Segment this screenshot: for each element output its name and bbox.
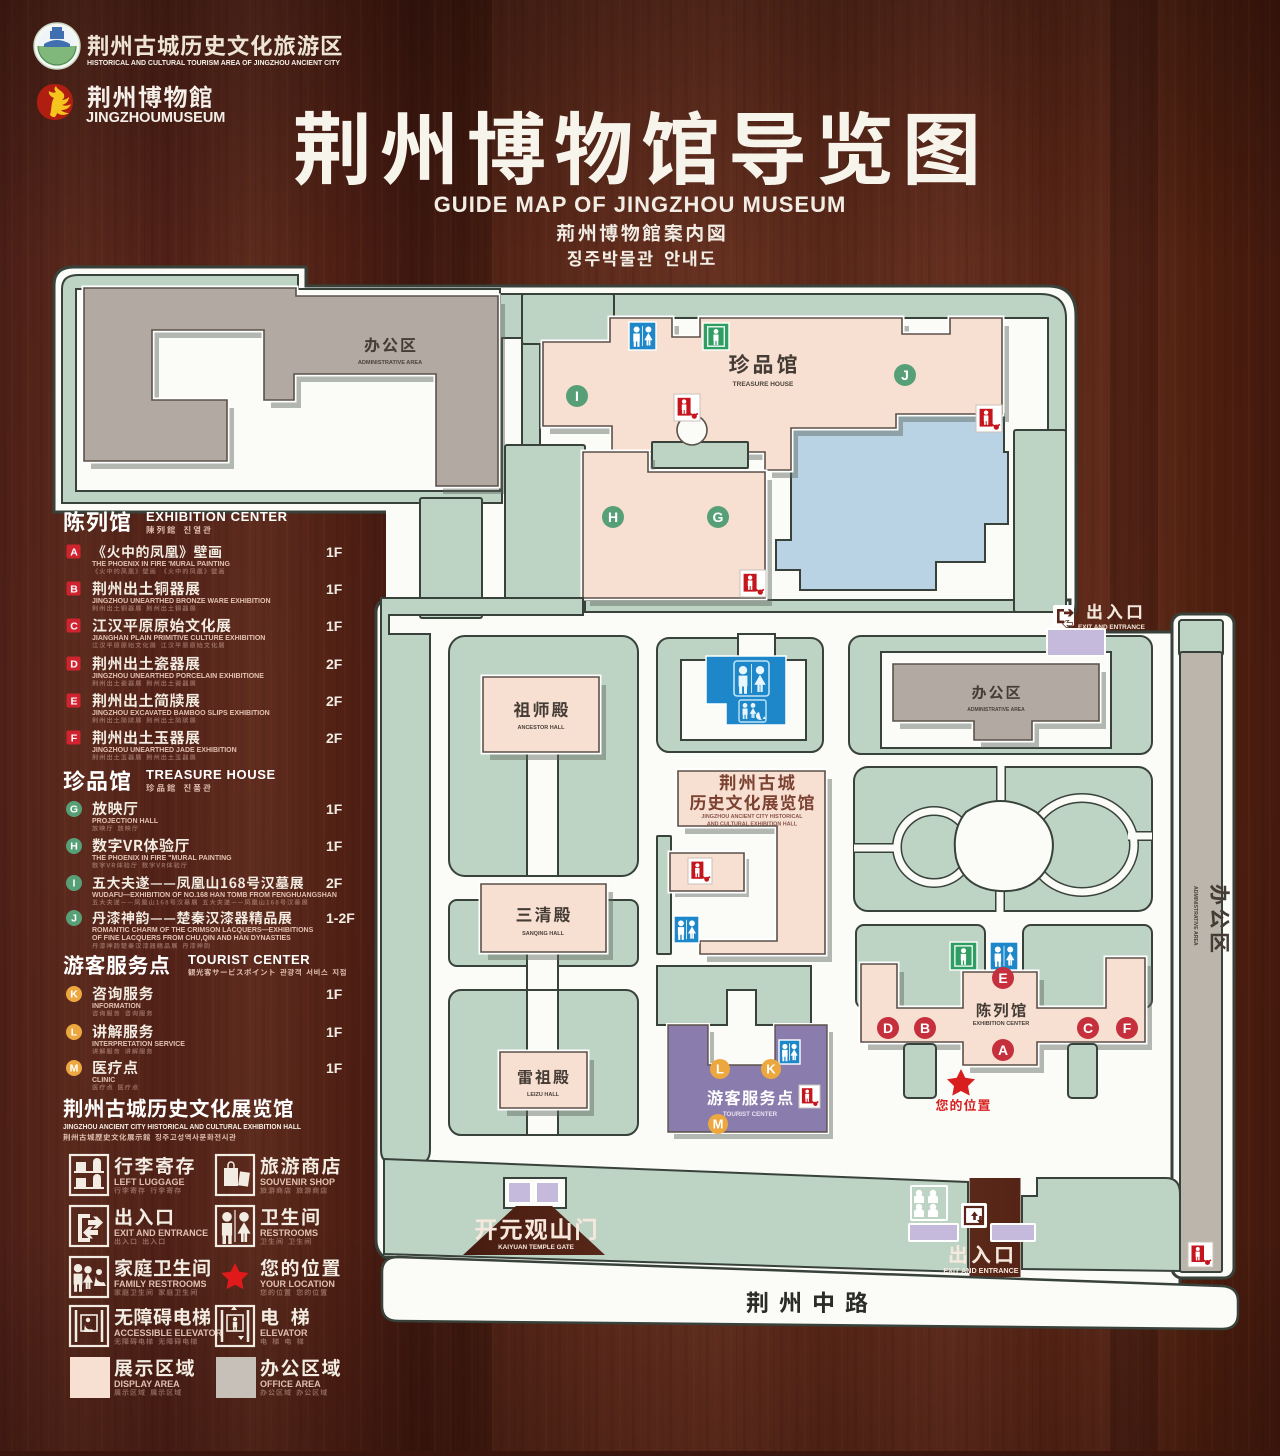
svg-text:SANQING HALL: SANQING HALL <box>522 931 565 937</box>
svg-text:TOURIST CENTER: TOURIST CENTER <box>188 952 310 967</box>
svg-text:FAMILY RESTROOMS: FAMILY RESTROOMS <box>114 1279 207 1289</box>
svg-text:2F: 2F <box>326 693 343 709</box>
svg-text:INTERPRETATION SERVICE: INTERPRETATION SERVICE <box>92 1041 185 1048</box>
svg-text:B: B <box>70 584 78 596</box>
svg-text:INFORMATION: INFORMATION <box>92 1003 141 1010</box>
svg-text:1F: 1F <box>326 986 343 1002</box>
svg-text:EXIT AND ENTRANCE: EXIT AND ENTRANCE <box>943 1266 1018 1275</box>
svg-text:E: E <box>998 970 1007 986</box>
svg-text:2F: 2F <box>326 656 343 672</box>
svg-text:EXHIBITION CENTER: EXHIBITION CENTER <box>973 1021 1030 1027</box>
svg-text:JINGZHOU ANCIENT CITY HISTORIC: JINGZHOU ANCIENT CITY HISTORICAL AND CUL… <box>63 1122 301 1131</box>
svg-text:B: B <box>920 1020 930 1036</box>
svg-text:G: G <box>70 804 78 816</box>
svg-text:F: F <box>1123 1020 1132 1036</box>
svg-text:1F: 1F <box>326 618 343 634</box>
svg-text:G: G <box>713 509 724 525</box>
svg-text:RESTROOMS: RESTROOMS <box>260 1228 318 1238</box>
svg-text:F: F <box>71 733 78 745</box>
svg-text:JINGZHOU UNEARTHED JADE EXHIBI: JINGZHOU UNEARTHED JADE EXHIBITION <box>92 747 237 754</box>
svg-text:YOUR LOCATION: YOUR LOCATION <box>260 1279 335 1289</box>
svg-text:JINGZHOU ANCIENT CITY HISTORIC: JINGZHOU ANCIENT CITY HISTORICAL <box>701 814 803 820</box>
svg-text:D: D <box>883 1020 893 1036</box>
svg-text:SOUVENIR SHOP: SOUVENIR SHOP <box>260 1177 335 1187</box>
svg-text:E: E <box>70 696 77 708</box>
svg-text:I: I <box>73 878 76 890</box>
svg-text:M: M <box>70 1063 79 1075</box>
svg-text:ROMANTIC CHARM OF THE CRIMSON: ROMANTIC CHARM OF THE CRIMSON LACQUERS—E… <box>92 927 314 934</box>
svg-text:LEIZU HALL: LEIZU HALL <box>527 1092 560 1098</box>
svg-text:L: L <box>716 1062 724 1077</box>
svg-text:K: K <box>70 989 78 1001</box>
svg-text:D: D <box>70 659 78 671</box>
svg-text:1-2F: 1-2F <box>326 910 355 926</box>
svg-text:ELEVATOR: ELEVATOR <box>260 1328 308 1338</box>
svg-text:TOURIST CENTER: TOURIST CENTER <box>723 1111 778 1118</box>
svg-text:ACCESSIBLE ELEVATOR: ACCESSIBLE ELEVATOR <box>114 1328 223 1338</box>
svg-text:1F: 1F <box>326 801 343 817</box>
svg-text:1F: 1F <box>326 1060 343 1076</box>
svg-text:JINGZHOU EXCAVATED BAMBOO SLIP: JINGZHOU EXCAVATED BAMBOO SLIPS EXHIBITI… <box>92 710 270 717</box>
svg-text:WUDAFU—EXHIBITION OF NO.168 HA: WUDAFU—EXHIBITION OF NO.168 HAN TOMB FRO… <box>92 892 337 899</box>
svg-text:ADMINISTRATIVE AREA: ADMINISTRATIVE AREA <box>358 360 422 366</box>
svg-text:THE PHOENIX IN FIRE "MURAL PAI: THE PHOENIX IN FIRE "MURAL PAINTING <box>92 855 232 862</box>
svg-text:OFFICE AREA: OFFICE AREA <box>260 1379 321 1389</box>
svg-text:ADMINISTRATIVE AREA: ADMINISTRATIVE AREA <box>1192 886 1198 946</box>
svg-text:JINGZHOU UNEARTHED PORCELAIN E: JINGZHOU UNEARTHED PORCELAIN EXHIBITIONE <box>92 673 264 680</box>
svg-text:2F: 2F <box>326 730 343 746</box>
svg-text:H: H <box>70 841 78 853</box>
svg-text:JIANGHAN PLAIN PRIMITIVE CULTU: JIANGHAN PLAIN PRIMITIVE CULTURE EXHIBIT… <box>92 635 265 642</box>
svg-text:H: H <box>608 509 618 525</box>
svg-text:ANCESTOR HALL: ANCESTOR HALL <box>518 725 566 731</box>
svg-text:C: C <box>70 621 78 633</box>
svg-text:A: A <box>70 547 78 559</box>
svg-text:A: A <box>998 1042 1008 1058</box>
svg-text:L: L <box>71 1027 78 1039</box>
svg-text:EXIT AND ENTRANCE: EXIT AND ENTRANCE <box>114 1228 208 1238</box>
svg-text:M: M <box>713 1117 724 1132</box>
svg-text:JINGZHOUMUSEUM: JINGZHOUMUSEUM <box>86 110 225 126</box>
svg-text:I: I <box>575 388 579 404</box>
svg-text:CLINIC: CLINIC <box>92 1077 115 1084</box>
svg-text:J: J <box>901 367 909 383</box>
svg-text:1F: 1F <box>326 581 343 597</box>
svg-text:1F: 1F <box>326 1024 343 1040</box>
svg-text:DISPLAY AREA: DISPLAY AREA <box>114 1379 180 1389</box>
svg-text:C: C <box>1083 1020 1093 1036</box>
svg-text:EXIT AND ENTRANCE: EXIT AND ENTRANCE <box>1078 624 1146 631</box>
svg-text:JINGZHOU UNEARTHED BRONZE WARE: JINGZHOU UNEARTHED BRONZE WARE EXHIBITIO… <box>92 598 271 605</box>
svg-text:AND CULTURAL EXHIBITION HALL: AND CULTURAL EXHIBITION HALL <box>707 822 798 828</box>
svg-text:1F: 1F <box>326 838 343 854</box>
svg-text:2F: 2F <box>326 875 343 891</box>
svg-text:TREASURE HOUSE: TREASURE HOUSE <box>146 767 276 782</box>
svg-text:LEFT LUGGAGE: LEFT LUGGAGE <box>114 1177 185 1187</box>
svg-text:K: K <box>766 1062 776 1077</box>
svg-text:EXHIBITION CENTER: EXHIBITION CENTER <box>146 509 288 524</box>
svg-text:GUIDE MAP OF JINGZHOU MUSEUM: GUIDE MAP OF JINGZHOU MUSEUM <box>434 192 847 217</box>
svg-text:TREASURE HOUSE: TREASURE HOUSE <box>733 381 794 388</box>
svg-text:THE PHOENIX IN FIRE 'MURAL PAI: THE PHOENIX IN FIRE 'MURAL PAINTING <box>92 561 230 568</box>
svg-text:PROJECTION HALL: PROJECTION HALL <box>92 818 159 825</box>
svg-text:ADMINISTRATIVE AREA: ADMINISTRATIVE AREA <box>967 707 1025 713</box>
svg-text:KAIYUAN TEMPLE GATE: KAIYUAN TEMPLE GATE <box>498 1244 575 1251</box>
svg-text:1F: 1F <box>326 544 343 560</box>
svg-text:HISTORICAL AND CULTURAL TOURIS: HISTORICAL AND CULTURAL TOURISM AREA OF … <box>87 58 340 67</box>
svg-text:J: J <box>71 913 77 925</box>
svg-text:OF FINE LACQUERS FROM CHU,QIN: OF FINE LACQUERS FROM CHU,QIN AND HAN DY… <box>92 935 291 942</box>
